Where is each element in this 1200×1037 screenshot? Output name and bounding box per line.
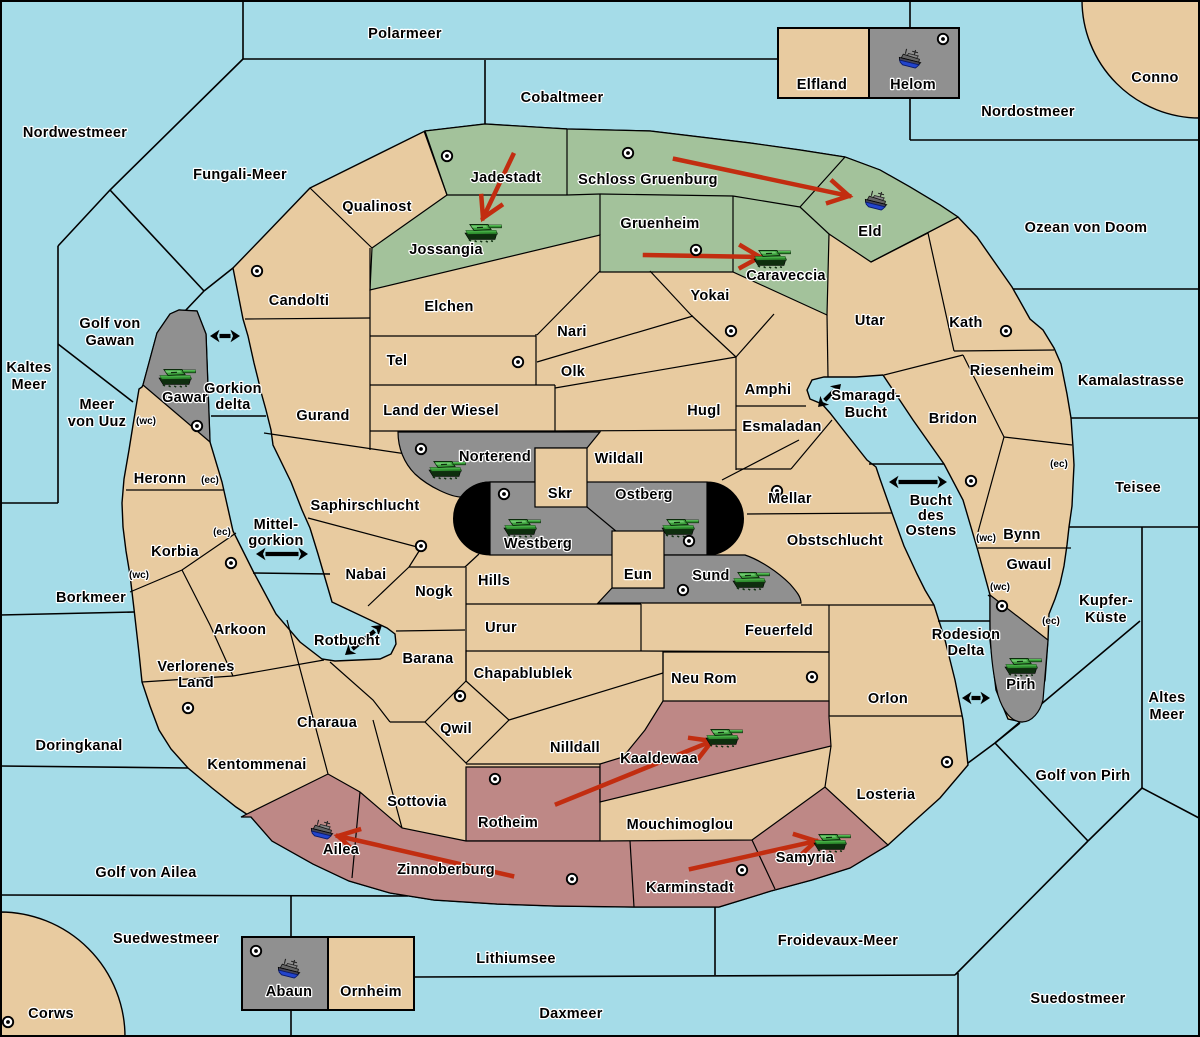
svg-text:Meer: Meer bbox=[1149, 707, 1184, 723]
svg-text:Nilldall: Nilldall bbox=[550, 740, 600, 756]
svg-text:Daxmeer: Daxmeer bbox=[539, 1006, 602, 1022]
svg-text:Jadestadt: Jadestadt bbox=[471, 170, 541, 186]
svg-text:Barana: Barana bbox=[403, 651, 455, 667]
svg-text:Mellar: Mellar bbox=[768, 491, 812, 507]
svg-text:Froidevaux-Meer: Froidevaux-Meer bbox=[778, 933, 899, 949]
svg-text:Amphi: Amphi bbox=[745, 382, 792, 398]
svg-text:Elfland: Elfland bbox=[797, 77, 847, 93]
svg-text:Bynn: Bynn bbox=[1003, 527, 1040, 543]
svg-text:Abaun: Abaun bbox=[266, 984, 313, 1000]
svg-text:Meer: Meer bbox=[11, 377, 46, 393]
svg-text:Utar: Utar bbox=[855, 313, 885, 329]
svg-text:Westberg: Westberg bbox=[504, 536, 572, 552]
svg-text:Bucht: Bucht bbox=[845, 405, 888, 421]
svg-text:(ec): (ec) bbox=[1042, 616, 1060, 627]
svg-text:Kamalastrasse: Kamalastrasse bbox=[1078, 373, 1184, 389]
svg-text:Küste: Küste bbox=[1085, 610, 1127, 626]
svg-text:Ostberg: Ostberg bbox=[615, 487, 673, 503]
svg-text:Polarmeer: Polarmeer bbox=[368, 26, 442, 42]
svg-text:Rotheim: Rotheim bbox=[478, 815, 538, 831]
svg-text:Zinnoberburg: Zinnoberburg bbox=[397, 862, 495, 878]
svg-text:(wc): (wc) bbox=[976, 533, 996, 544]
svg-text:Gurand: Gurand bbox=[296, 408, 349, 424]
svg-text:Skr: Skr bbox=[548, 486, 572, 502]
svg-text:Ozean von Doom: Ozean von Doom bbox=[1025, 220, 1148, 236]
svg-text:Samyria: Samyria bbox=[776, 850, 835, 866]
svg-text:Hills: Hills bbox=[478, 573, 510, 589]
svg-text:Urur: Urur bbox=[485, 620, 517, 636]
svg-text:Hugl: Hugl bbox=[687, 403, 720, 419]
svg-text:Mittel-: Mittel- bbox=[254, 517, 299, 533]
svg-text:Korbia: Korbia bbox=[151, 544, 199, 560]
svg-text:Kupfer-: Kupfer- bbox=[1079, 593, 1133, 609]
svg-text:Fungali-Meer: Fungali-Meer bbox=[193, 167, 287, 183]
svg-text:Kaltes: Kaltes bbox=[6, 360, 51, 376]
svg-text:Gwaul: Gwaul bbox=[1006, 557, 1051, 573]
svg-text:Esmaladan: Esmaladan bbox=[742, 419, 821, 435]
svg-text:Obstschlucht: Obstschlucht bbox=[787, 533, 883, 549]
svg-text:Tel: Tel bbox=[387, 353, 408, 369]
svg-text:Bucht: Bucht bbox=[910, 493, 953, 509]
svg-text:Gruenheim: Gruenheim bbox=[620, 216, 699, 232]
svg-text:Golf von Pirh: Golf von Pirh bbox=[1036, 768, 1131, 784]
svg-text:Qualinost: Qualinost bbox=[342, 199, 412, 215]
svg-text:delta: delta bbox=[215, 397, 251, 413]
svg-text:Karminstadt: Karminstadt bbox=[646, 880, 734, 896]
svg-text:Sottovia: Sottovia bbox=[387, 794, 447, 810]
svg-text:Schloss Gruenburg: Schloss Gruenburg bbox=[578, 172, 718, 188]
svg-text:Qwil: Qwil bbox=[440, 721, 472, 737]
svg-text:Doringkanal: Doringkanal bbox=[35, 738, 122, 754]
svg-text:Feuerfeld: Feuerfeld bbox=[745, 623, 813, 639]
svg-text:(ec): (ec) bbox=[201, 475, 219, 486]
svg-text:Pirh: Pirh bbox=[1006, 677, 1035, 693]
svg-text:(ec): (ec) bbox=[213, 527, 231, 538]
svg-text:Teisee: Teisee bbox=[1115, 480, 1161, 496]
svg-text:Ostens: Ostens bbox=[906, 523, 957, 539]
svg-text:Altes: Altes bbox=[1149, 690, 1186, 706]
svg-text:Candolti: Candolti bbox=[269, 293, 329, 309]
svg-text:Golf von: Golf von bbox=[79, 316, 140, 332]
svg-text:Gawar: Gawar bbox=[162, 390, 208, 406]
svg-text:Nordostmeer: Nordostmeer bbox=[981, 104, 1075, 120]
svg-text:Kath: Kath bbox=[949, 315, 982, 331]
svg-text:Golf von Ailea: Golf von Ailea bbox=[95, 865, 197, 881]
svg-text:Ornheim: Ornheim bbox=[340, 984, 402, 1000]
svg-text:Nogk: Nogk bbox=[415, 584, 453, 600]
svg-text:Norterend: Norterend bbox=[459, 449, 531, 465]
svg-text:Wildall: Wildall bbox=[595, 451, 644, 467]
svg-text:Gorkion: Gorkion bbox=[204, 381, 262, 397]
svg-text:Suedwestmeer: Suedwestmeer bbox=[113, 931, 219, 947]
svg-text:Land: Land bbox=[178, 675, 214, 691]
svg-text:Delta: Delta bbox=[948, 643, 986, 659]
svg-text:Orlon: Orlon bbox=[868, 691, 908, 707]
svg-text:von Uuz: von Uuz bbox=[68, 414, 127, 430]
svg-text:Cobaltmeer: Cobaltmeer bbox=[521, 90, 604, 106]
svg-text:Kaaldewaa: Kaaldewaa bbox=[620, 751, 698, 767]
svg-text:Suedostmeer: Suedostmeer bbox=[1030, 991, 1125, 1007]
svg-text:Gawan: Gawan bbox=[85, 333, 134, 349]
svg-text:Eld: Eld bbox=[858, 224, 881, 240]
svg-text:Smaragd-: Smaragd- bbox=[831, 388, 900, 404]
svg-text:Rotbucht: Rotbucht bbox=[314, 633, 380, 649]
svg-text:Elchen: Elchen bbox=[424, 299, 473, 315]
svg-text:Lithiumsee: Lithiumsee bbox=[476, 951, 556, 967]
svg-text:gorkion: gorkion bbox=[248, 533, 303, 549]
svg-text:Eun: Eun bbox=[624, 567, 652, 583]
svg-text:(wc): (wc) bbox=[129, 570, 149, 581]
svg-text:Helom: Helom bbox=[890, 77, 936, 93]
svg-text:Conno: Conno bbox=[1131, 70, 1178, 86]
svg-text:Charaua: Charaua bbox=[297, 715, 358, 731]
svg-text:Heronn: Heronn bbox=[134, 471, 187, 487]
svg-text:Neu Rom: Neu Rom bbox=[671, 671, 737, 687]
svg-text:Olk: Olk bbox=[561, 364, 586, 380]
svg-text:Riesenheim: Riesenheim bbox=[970, 363, 1054, 379]
svg-text:des: des bbox=[918, 508, 944, 524]
svg-text:Nordwestmeer: Nordwestmeer bbox=[23, 125, 127, 141]
svg-text:Arkoon: Arkoon bbox=[214, 622, 267, 638]
svg-text:Bridon: Bridon bbox=[929, 411, 978, 427]
svg-text:Borkmeer: Borkmeer bbox=[56, 590, 126, 606]
svg-text:Chapablublek: Chapablublek bbox=[474, 666, 573, 682]
svg-text:(ec): (ec) bbox=[1050, 459, 1068, 470]
svg-text:(wc): (wc) bbox=[136, 416, 156, 427]
svg-text:Kentommenai: Kentommenai bbox=[207, 757, 306, 773]
svg-text:Caraveccia: Caraveccia bbox=[746, 268, 826, 284]
svg-text:Corws: Corws bbox=[28, 1006, 74, 1022]
svg-text:Nabai: Nabai bbox=[346, 567, 387, 583]
svg-text:(wc): (wc) bbox=[990, 582, 1010, 593]
svg-text:Saphirschlucht: Saphirschlucht bbox=[311, 498, 420, 514]
svg-text:Verlorenes: Verlorenes bbox=[157, 659, 234, 675]
svg-text:Mouchimoglou: Mouchimoglou bbox=[627, 817, 734, 833]
svg-text:Meer: Meer bbox=[79, 397, 114, 413]
svg-text:Jossangia: Jossangia bbox=[409, 242, 483, 258]
svg-text:Sund: Sund bbox=[692, 568, 729, 584]
svg-text:Rodesion: Rodesion bbox=[932, 627, 1000, 643]
svg-text:Land der Wiesel: Land der Wiesel bbox=[383, 403, 499, 419]
svg-text:Losteria: Losteria bbox=[857, 787, 916, 803]
svg-text:Nari: Nari bbox=[557, 324, 586, 340]
svg-text:Ailea: Ailea bbox=[323, 842, 360, 858]
svg-text:Yokai: Yokai bbox=[690, 288, 729, 304]
